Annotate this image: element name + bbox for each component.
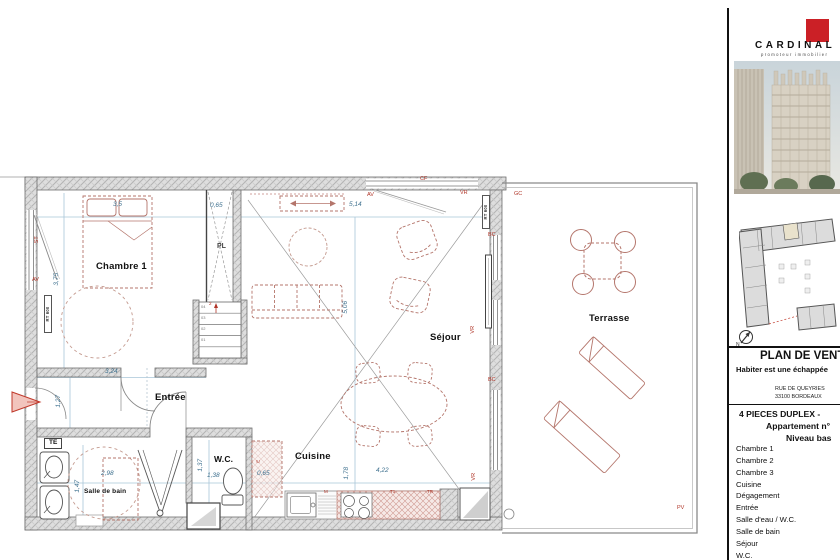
address-line1: RUE DE QUEYRIES	[775, 386, 825, 392]
tag-tr-counter: TR	[427, 490, 433, 495]
title-block-rule-top	[727, 346, 840, 348]
brand-tagline: promoteur immobilier	[761, 52, 828, 57]
te-box-label: TE	[44, 438, 62, 449]
tag-stair-direction: 2	[209, 302, 212, 307]
room-label-cuisine: Cuisine	[295, 452, 331, 462]
tag-vr-kitchen: VR	[472, 473, 478, 481]
tag-rt600-left: RT 600	[44, 295, 52, 333]
tag-cf: CF	[420, 177, 427, 183]
floor-plan-drawing	[0, 0, 840, 560]
tag-rt600-right: RT 600	[482, 195, 490, 229]
tag-m-counter: M	[324, 490, 328, 495]
plan-sheet: Chambre 1 Séjour Terrasse Entrée Cuisine…	[0, 0, 840, 560]
dim-placard-width: 0,65	[210, 203, 223, 210]
tag-av-top: AV	[367, 193, 374, 199]
room-label-chambre1: Chambre 1	[96, 262, 147, 272]
address-line2: 33100 BORDEAUX	[775, 394, 822, 400]
room-list-item: Chambre 1	[736, 443, 796, 455]
tag-gc: GC	[514, 192, 522, 198]
toilet	[222, 468, 243, 505]
dim-wc-width: 1,38	[207, 473, 220, 480]
armchair-2	[388, 275, 432, 314]
terrace-drain	[504, 509, 514, 519]
room-list-item: Entrée	[736, 502, 796, 514]
cardinal-logo-icon	[806, 19, 829, 42]
room-label-placard: PL	[217, 243, 226, 250]
room-label-entree: Entrée	[155, 393, 186, 403]
tv-bench	[486, 255, 492, 328]
dim-kitchen-recess: 0,65	[257, 471, 270, 478]
dim-sdb-height: 1,47	[75, 480, 82, 493]
apartment-level: Niveau bas	[786, 433, 831, 443]
tag-vr-top: VR	[460, 191, 468, 197]
terrace-dining-set	[571, 230, 636, 295]
sun-lounger-1	[579, 336, 646, 399]
apartment-number: Appartement n°	[766, 421, 830, 431]
room-list-item: Chambre 2	[736, 455, 796, 467]
sofa	[252, 285, 342, 318]
armchair-1	[394, 218, 439, 262]
sideboard	[280, 196, 344, 211]
shower-tray	[187, 503, 220, 529]
room-list: Chambre 1 Chambre 2 Chambre 3 Cuisine Dé…	[736, 443, 796, 560]
turning-circle-bedroom	[61, 286, 133, 358]
room-list-item: Cuisine	[736, 479, 796, 491]
room-list-item: Chambre 3	[736, 467, 796, 479]
windows	[27, 179, 501, 471]
plan-slogan: Habiter est une échappée	[736, 365, 828, 374]
room-label-salle-de-bain: Salle de bain	[84, 489, 126, 496]
dim-kitchen-width: 4,22	[376, 468, 389, 475]
sun-lounger-2	[544, 401, 621, 474]
room-label-sejour: Séjour	[430, 333, 461, 343]
title-block-rule-bottom	[727, 404, 840, 405]
brand-name: CARDINAL	[755, 40, 835, 51]
dim-sejour-width: 5,14	[349, 202, 362, 209]
bed	[83, 196, 152, 288]
dim-chambre-height: 3,75	[54, 273, 61, 286]
stair-step-02: 02	[201, 327, 205, 331]
stair-step-01: 01	[201, 338, 205, 342]
building-photo	[734, 61, 840, 194]
interior-walls	[37, 190, 458, 530]
tag-bc-upper: BC	[488, 233, 496, 239]
dining-table	[341, 362, 447, 447]
room-label-terrasse: Terrasse	[589, 314, 630, 324]
dim-sejour-height: 5,06	[343, 301, 350, 314]
plan-title: PLAN DE VENTE	[760, 350, 840, 362]
tag-av-left: AV	[32, 278, 39, 284]
stair-step-03: 03	[201, 316, 205, 320]
sidebar-divider	[727, 8, 729, 560]
dim-wc-height: 1,37	[198, 459, 205, 472]
north-arrow-icon: N	[736, 327, 756, 347]
room-label-wc: W.C.	[214, 455, 233, 464]
dim-kitchen-depth: 1,78	[344, 467, 351, 480]
terrace-boundary	[502, 183, 697, 533]
tag-bc-lower: BC	[488, 378, 496, 384]
tag-pv: PV	[677, 506, 684, 512]
dim-entree-width: 3,24	[105, 369, 118, 376]
apartment-type: 4 PIECES DUPLEX -	[739, 409, 820, 419]
tag-vr-right: VR	[471, 326, 477, 334]
dim-chambre-width: 3,5	[113, 202, 122, 209]
room-list-item: Salle d'eau / W.C.	[736, 514, 796, 526]
dim-sdb-width: 2,98	[101, 471, 114, 478]
room-list-item: Séjour	[736, 538, 796, 550]
room-list-item: Dégagement	[736, 490, 796, 502]
dim-entree-recess: 1,27	[56, 395, 63, 408]
room-list-item: Salle de bain	[736, 526, 796, 538]
tag-e-kitchen: E	[256, 460, 261, 463]
stair-step-04: 04	[201, 305, 205, 309]
round-rug	[289, 228, 327, 266]
tag-st-left: ST	[35, 236, 41, 243]
room-list-item: W.C.	[736, 550, 796, 560]
tag-t1-counter: T1	[390, 490, 395, 495]
site-key-plan	[739, 216, 839, 334]
